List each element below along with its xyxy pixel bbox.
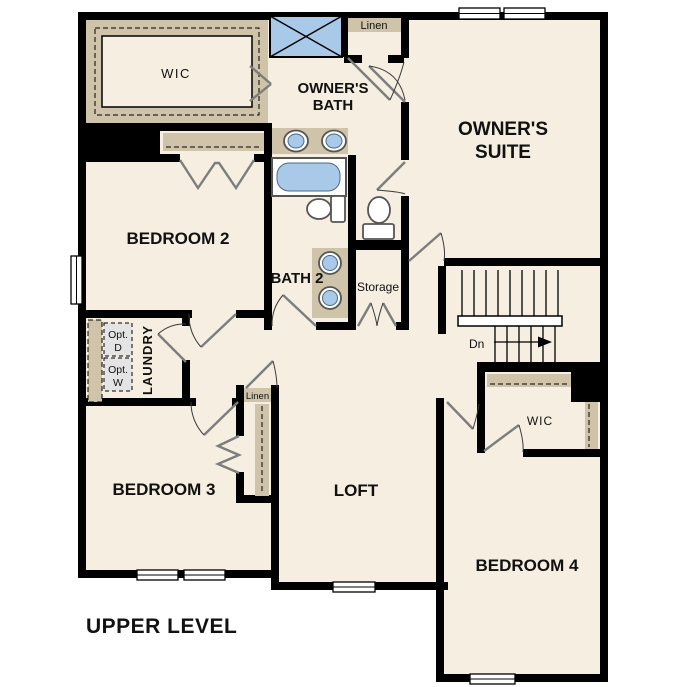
opt-w-label-2: W [113, 377, 123, 389]
bath2-label: BATH 2 [270, 270, 323, 287]
window [504, 8, 545, 19]
owners-suite-label-1: OWNER'S [458, 119, 548, 140]
bedroom3-label: BEDROOM 3 [113, 480, 216, 499]
wic4-top-shelf [487, 374, 571, 387]
laundry-shelf [88, 320, 102, 402]
bedroom2-label: BEDROOM 2 [127, 229, 230, 248]
floor-plan-drawing: WIC OWNER'S BATH Linen OWNER'S SUITE BED… [0, 0, 687, 687]
window [137, 570, 178, 580]
linen-top-label: Linen [361, 20, 388, 32]
wic-top-label: WIC [161, 66, 191, 81]
bathtub-icon [272, 158, 346, 196]
window [333, 582, 375, 592]
floor-plan: WIC OWNER'S BATH Linen OWNER'S SUITE BED… [0, 0, 687, 687]
linen-mid-label: Linen [246, 391, 269, 402]
loft-label: LOFT [334, 481, 379, 500]
opt-d-label-2: D [114, 342, 122, 354]
storage-label: Storage [357, 280, 399, 294]
window [470, 674, 515, 684]
shower-icon [270, 16, 342, 57]
down-label: Dn [469, 337, 484, 351]
owners-bath-label-1: OWNER'S [297, 80, 368, 97]
laundry-label: LAUNDRY [140, 325, 155, 395]
owners-suite-label-2: SUITE [475, 142, 531, 163]
window [71, 256, 82, 304]
bedroom4-label: BEDROOM 4 [476, 556, 580, 575]
owners-bath-label-2: BATH [313, 97, 354, 114]
toilet-icon-bath2 [307, 196, 345, 222]
stair-landing [458, 316, 562, 326]
window [459, 8, 500, 19]
opt-d-label-1: Opt. [108, 329, 128, 341]
wic4-side-shelf [585, 402, 598, 449]
window [184, 570, 225, 580]
bedroom2-closet-shelf [163, 133, 264, 151]
opt-w-label-1: Opt. [108, 364, 128, 376]
page-title: UPPER LEVEL [86, 615, 237, 638]
wic-right-label: WIC [527, 414, 553, 428]
